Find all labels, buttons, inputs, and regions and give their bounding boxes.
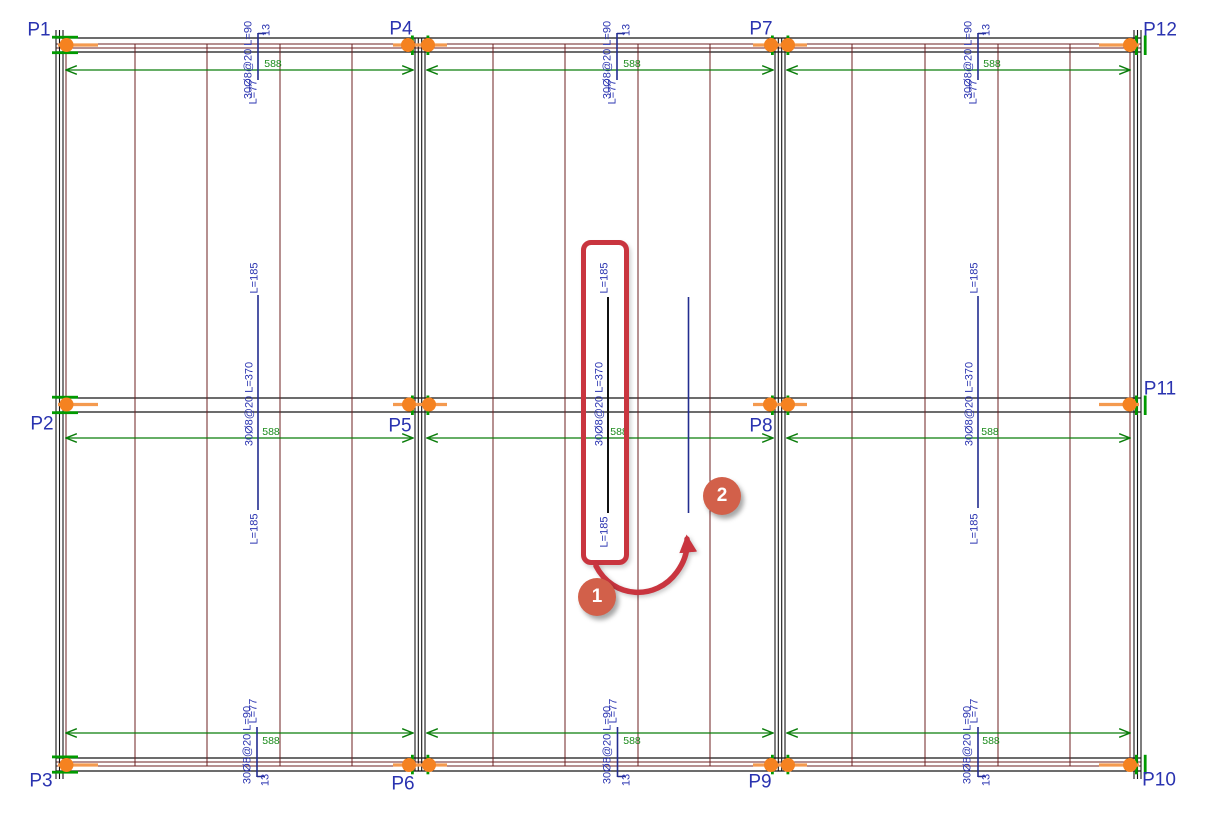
point-label-p3: P3 <box>29 772 52 791</box>
dim-value-top-right: 588 <box>983 59 1001 70</box>
leg-length-top-right: L=77 <box>969 80 980 105</box>
hook-length-top-left: 13 <box>262 24 273 36</box>
leg-length-bottom-right: L=77 <box>970 699 981 724</box>
hook-length-top-mid: 13 <box>622 24 633 36</box>
dim-value-bottom-right: 588 <box>982 736 1000 747</box>
point-label-p7: P7 <box>749 20 772 39</box>
point-label-p1: P1 <box>27 21 50 40</box>
hook-length-bottom-left: 13 <box>261 774 272 786</box>
half-extension-upper-right: L=185 <box>970 263 981 294</box>
half-extension-lower-left: L=185 <box>250 514 261 545</box>
hook-length-bottom-mid: 13 <box>622 774 633 786</box>
half-extension-upper-left: L=185 <box>250 263 261 294</box>
cad-floor-plan-view: P1 P4 P7 P12 P2 P5 P8 P11 P3 P6 P9 P10 3… <box>0 0 1231 836</box>
point-label-p10: P10 <box>1142 771 1176 790</box>
point-label-p4: P4 <box>389 20 412 39</box>
leg-length-top-mid: L=77 <box>608 80 619 105</box>
dim-value-top-mid: 588 <box>623 59 641 70</box>
half-extension-lower-right: L=185 <box>970 514 981 545</box>
point-label-p12: P12 <box>1143 21 1177 40</box>
dim-value-top-left: 588 <box>264 59 282 70</box>
hook-length-top-right: 13 <box>982 24 993 36</box>
dim-value-bottom-mid: 588 <box>623 736 641 747</box>
dim-value-bottom-left: 588 <box>262 736 280 747</box>
point-label-p6: P6 <box>391 775 414 794</box>
rebar-annotation-mid-right: 30Ø8@20 L=370 <box>965 362 976 446</box>
rebar-annotation-mid-left: 30Ø8@20 L=370 <box>245 362 256 446</box>
leg-length-bottom-left: L=77 <box>249 699 260 724</box>
point-label-p9: P9 <box>748 773 771 792</box>
point-label-p2: P2 <box>30 415 53 434</box>
leg-length-top-left: L=77 <box>249 80 260 105</box>
step-1-badge[interactable]: 1 <box>578 578 616 616</box>
dim-value-mid-right: 588 <box>981 427 999 438</box>
selection-highlight-box <box>581 240 629 565</box>
point-label-p11: P11 <box>1144 380 1176 399</box>
hook-length-bottom-right: 13 <box>982 774 993 786</box>
dim-value-mid-left: 588 <box>262 427 280 438</box>
leg-length-bottom-mid: L=77 <box>609 699 620 724</box>
point-label-p5: P5 <box>388 417 411 436</box>
point-label-p8: P8 <box>749 417 772 436</box>
step-2-badge[interactable]: 2 <box>703 477 741 515</box>
